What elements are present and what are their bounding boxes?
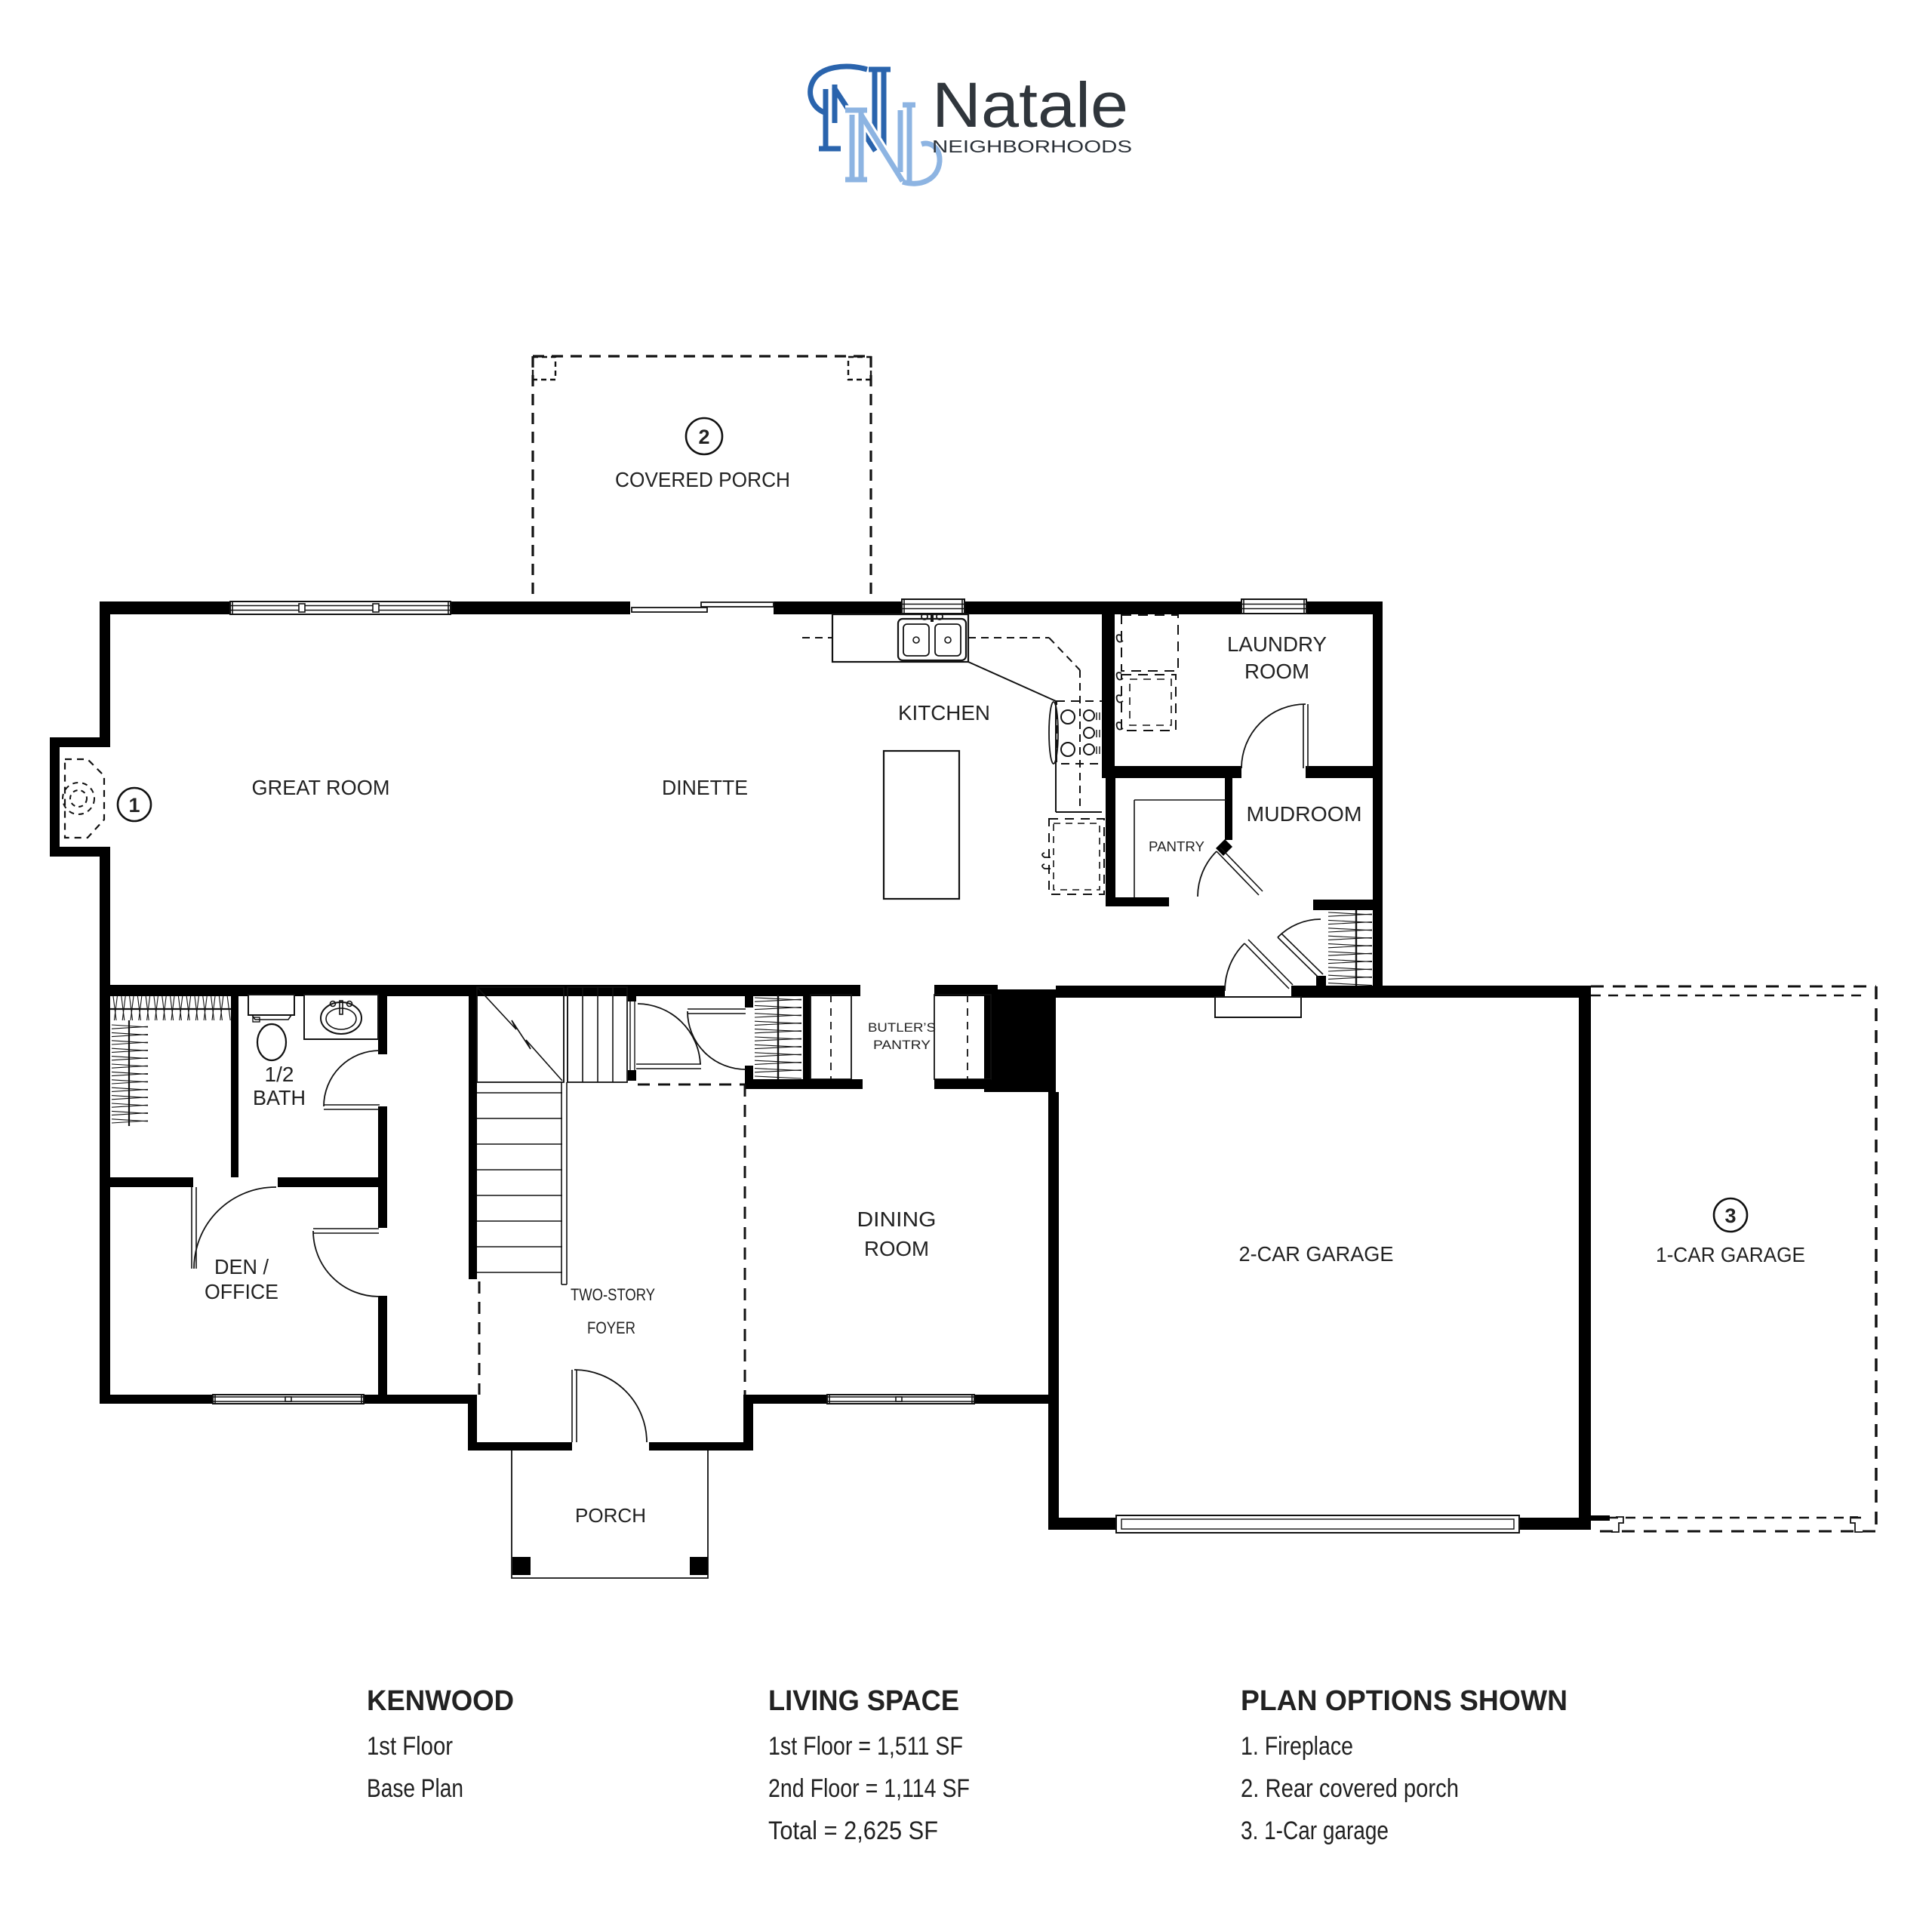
svg-text:BUTLER’S: BUTLER’S bbox=[868, 1021, 936, 1035]
svg-text:1: 1 bbox=[128, 794, 140, 817]
svg-text:NEIGHBORHOODS: NEIGHBORHOODS bbox=[932, 137, 1132, 156]
svg-text:3. 1-Car garage: 3. 1-Car garage bbox=[1241, 1817, 1389, 1845]
svg-text:TWO-STORY: TWO-STORY bbox=[571, 1285, 655, 1304]
svg-text:KENWOOD: KENWOOD bbox=[367, 1685, 514, 1717]
svg-text:Base Plan: Base Plan bbox=[367, 1774, 463, 1803]
svg-text:DINING: DINING bbox=[857, 1207, 937, 1231]
svg-text:2: 2 bbox=[698, 426, 709, 448]
svg-text:OFFICE: OFFICE bbox=[205, 1280, 278, 1303]
svg-text:LAUNDRY: LAUNDRY bbox=[1227, 632, 1327, 656]
svg-text:1st Floor: 1st Floor bbox=[367, 1732, 453, 1761]
svg-text:DEN /: DEN / bbox=[214, 1255, 269, 1278]
svg-text:PLAN OPTIONS SHOWN: PLAN OPTIONS SHOWN bbox=[1241, 1685, 1567, 1717]
svg-text:2. Rear covered porch: 2. Rear covered porch bbox=[1241, 1774, 1459, 1803]
svg-text:1-CAR GARAGE: 1-CAR GARAGE bbox=[1656, 1243, 1805, 1266]
svg-text:ROOM: ROOM bbox=[1244, 660, 1309, 683]
svg-text:BATH: BATH bbox=[253, 1086, 306, 1109]
svg-text:ROOM: ROOM bbox=[864, 1237, 929, 1260]
svg-text:LIVING SPACE: LIVING SPACE bbox=[768, 1685, 959, 1717]
svg-text:Natale: Natale bbox=[932, 69, 1128, 140]
svg-text:GREAT ROOM: GREAT ROOM bbox=[252, 776, 390, 799]
svg-text:3: 3 bbox=[1724, 1204, 1736, 1227]
svg-text:FOYER: FOYER bbox=[587, 1318, 635, 1337]
svg-text:PANTRY: PANTRY bbox=[873, 1038, 931, 1052]
svg-text:DINETTE: DINETTE bbox=[662, 776, 748, 799]
svg-text:1st Floor = 1,511 SF: 1st Floor = 1,511 SF bbox=[768, 1732, 963, 1761]
svg-text:1/2: 1/2 bbox=[265, 1063, 294, 1086]
svg-text:PANTRY: PANTRY bbox=[1149, 839, 1204, 854]
svg-text:MUDROOM: MUDROOM bbox=[1247, 802, 1362, 826]
svg-text:COVERED PORCH: COVERED PORCH bbox=[615, 468, 790, 491]
svg-text:KITCHEN: KITCHEN bbox=[898, 701, 990, 724]
svg-text:2nd Floor = 1,114 SF: 2nd Floor = 1,114 SF bbox=[768, 1774, 970, 1803]
svg-text:2-CAR GARAGE: 2-CAR GARAGE bbox=[1239, 1242, 1394, 1266]
svg-text:Total = 2,625 SF: Total = 2,625 SF bbox=[768, 1817, 938, 1845]
svg-text:1. Fireplace: 1. Fireplace bbox=[1241, 1732, 1353, 1761]
svg-text:PORCH: PORCH bbox=[575, 1504, 646, 1527]
